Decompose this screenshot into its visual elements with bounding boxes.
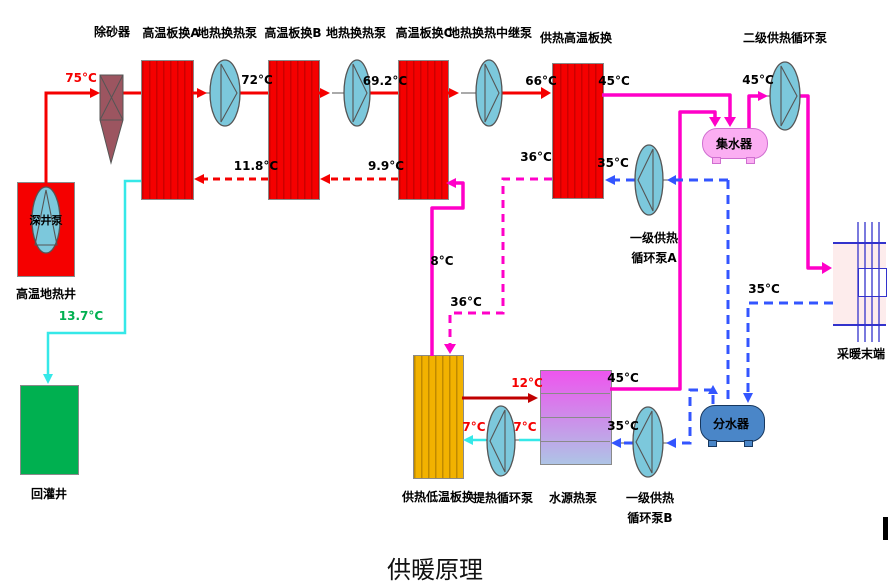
label-pump-a-line1: 一级供热 [630, 231, 678, 246]
temp-reinjection: 13.7°C [59, 309, 103, 323]
label-pump-a-line2: 循环泵A [631, 251, 676, 266]
label-hx-a: 高温板换A [142, 26, 199, 41]
label-pump-b-line2: 循环泵B [627, 511, 672, 526]
temp-after-a: 72°C [241, 73, 273, 87]
primary-pump-b-symbol [633, 407, 663, 477]
label-pump-b-line1: 一级供热 [626, 491, 674, 506]
geothermal-pump-2-symbol [344, 60, 370, 126]
temp-terminal-return: 35°C [748, 282, 780, 296]
diagram-title: 供暖原理 [387, 550, 483, 585]
temp-after-c: 66°C [525, 74, 557, 88]
label-hx-c: 高温板换C [396, 26, 453, 41]
label-sand-remover: 除砂器 [94, 25, 130, 40]
secondary-pump-symbol [770, 62, 800, 130]
temp-return-bc: 9.9°C [368, 159, 404, 173]
label-distributor: 分水器 [713, 415, 749, 432]
pipe-low-to-wshp [462, 393, 538, 403]
temp-wshp-out: 45°C [607, 371, 639, 385]
extract-pump-symbol [487, 406, 515, 476]
label-pump-geo1: 地热换热泵 [197, 26, 257, 41]
temp-low-to-c: 8°C [430, 254, 453, 268]
temp-after-b: 69.2°C [363, 74, 407, 88]
label-pump-secondary: 二级供热循环泵 [743, 31, 827, 46]
heating-principle-diagram: 除砂器 高温板换A 地热换热泵 高温板换B 地热换热泵 高温板换C 地热换热中继… [0, 0, 888, 586]
temp-wshp-return: 35°C [607, 419, 639, 433]
label-pump-extract: 提热循环泵 [473, 491, 533, 506]
label-hx-supply: 供热高温板换 [540, 31, 612, 46]
label-collector: 集水器 [716, 135, 752, 152]
temp-collector-out: 45°C [742, 73, 774, 87]
label-deep-well-pump: 深井泵 [30, 213, 63, 228]
pipe-heating-return-blue [605, 175, 833, 448]
label-reinjection-well: 回灌井 [31, 487, 67, 502]
pipe-geothermal-return [194, 174, 398, 184]
terminal-radiator-lines [858, 222, 879, 342]
temp-extract-a: 7°C [462, 420, 485, 434]
temp-supply-75: 75°C [65, 71, 97, 85]
temp-low-to-wshp: 12°C [511, 376, 543, 390]
label-hx-low: 供热低温板换 [402, 490, 474, 505]
label-hx-b: 高温板换B [264, 26, 321, 41]
temp-return-ab: 11.8°C [234, 159, 278, 173]
relay-pump-symbol [476, 60, 502, 126]
label-wshp: 水源热泵 [549, 491, 597, 506]
pipe-36-dashed [444, 179, 552, 354]
label-geothermal-well: 高温地热井 [16, 287, 76, 302]
label-terminal: 采暖末端 [837, 347, 885, 362]
label-pump-relay: 地热换热中继泵 [448, 26, 532, 41]
label-pump-geo2: 地热换热泵 [326, 26, 386, 41]
geothermal-pump-1-symbol [210, 60, 240, 126]
sand-remover-symbol [100, 75, 123, 163]
temp-extract-b: 7°C [513, 420, 536, 434]
temp-low-in: 36°C [450, 295, 482, 309]
temp-hx-supply-out: 45°C [598, 74, 630, 88]
temp-hx-supply-cold-in: 35°C [597, 156, 629, 170]
temp-hx-supply-cold-out: 36°C [520, 150, 552, 164]
primary-pump-a-symbol [635, 145, 663, 215]
